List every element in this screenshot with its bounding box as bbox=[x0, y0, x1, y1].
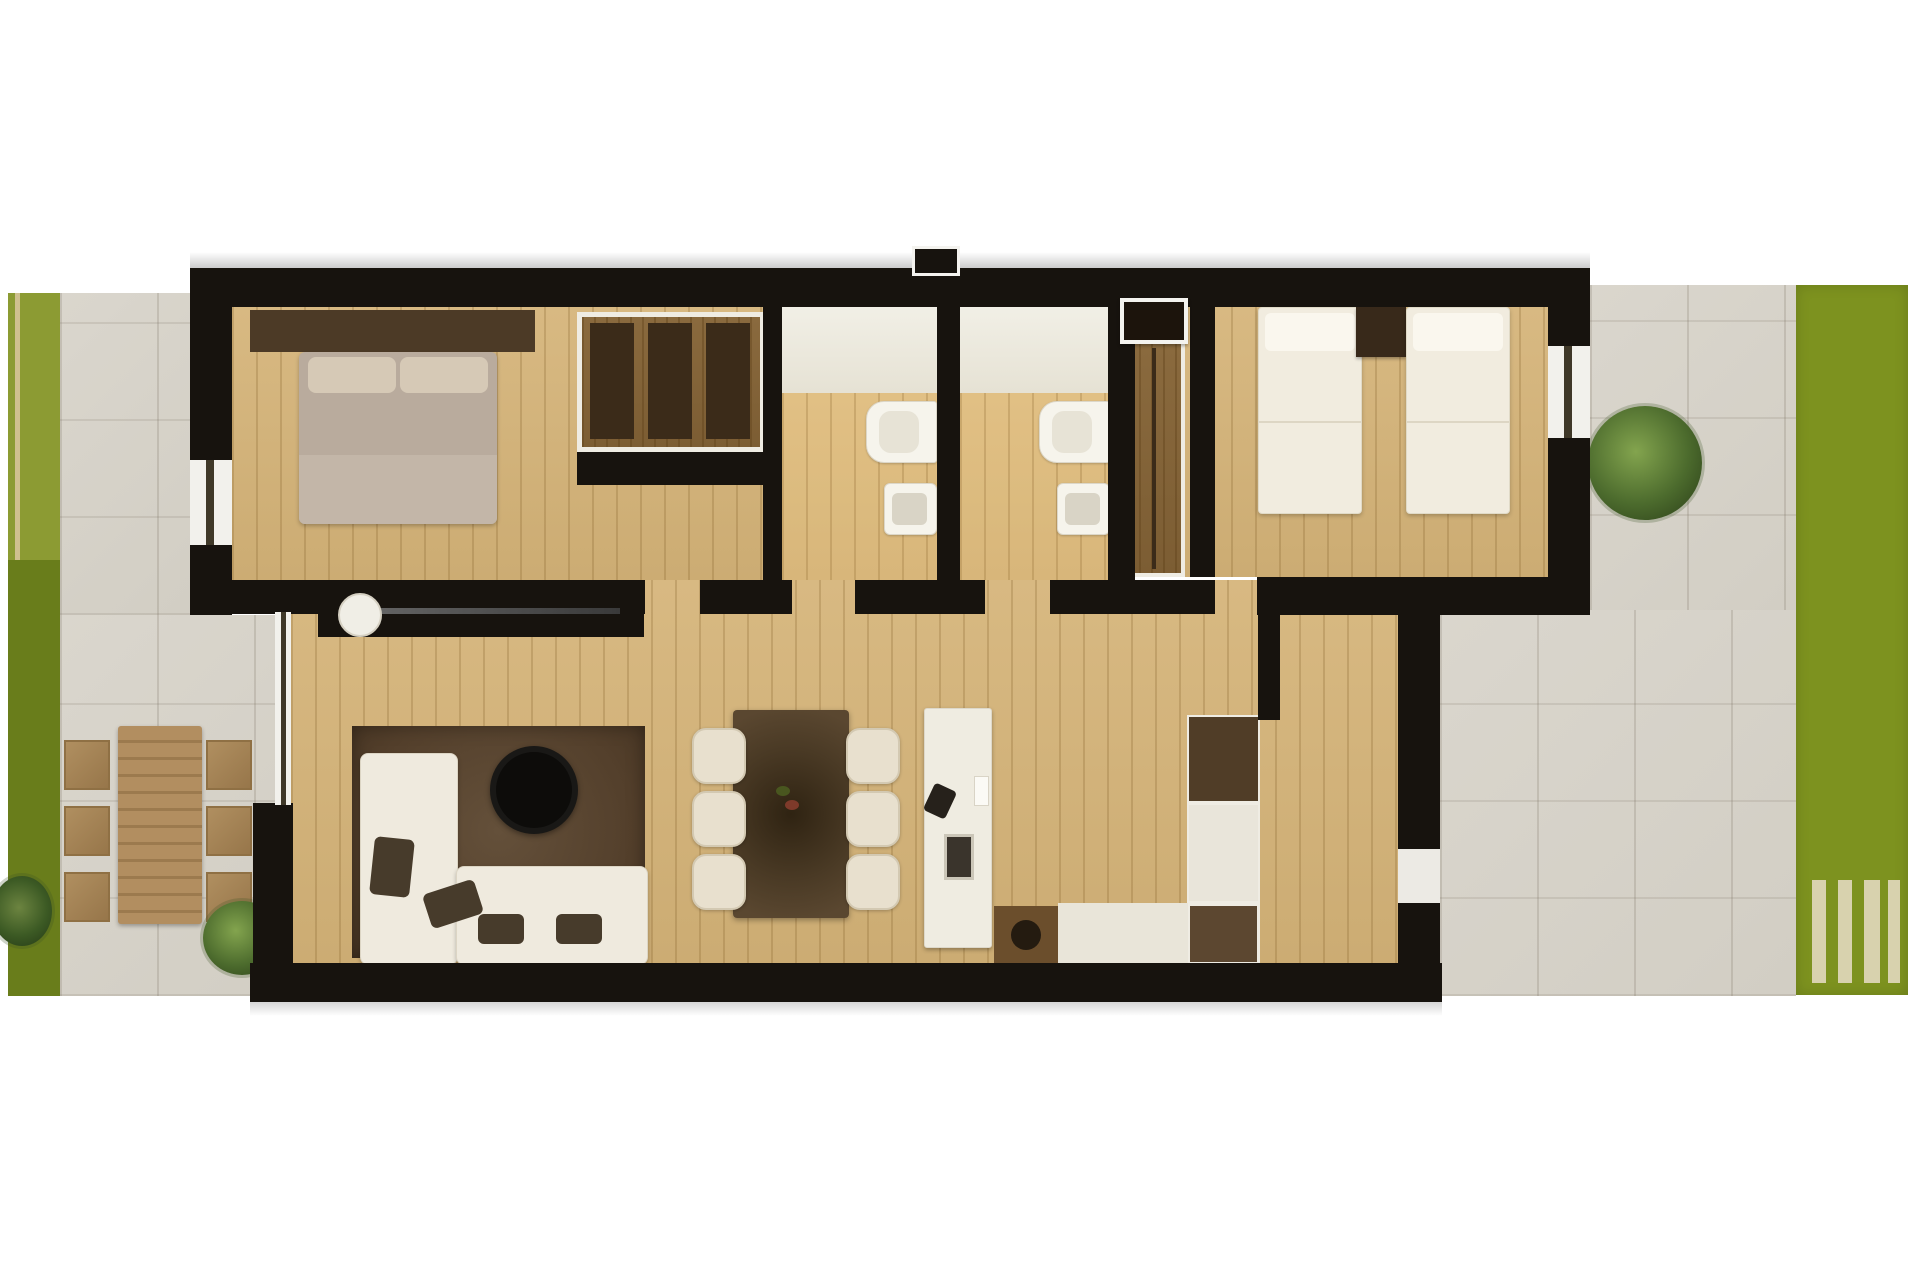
deck-slat bbox=[1864, 880, 1880, 983]
centerpiece bbox=[785, 800, 799, 810]
wall-left-upper bbox=[190, 268, 232, 460]
dining-table bbox=[733, 710, 849, 918]
bidet-basin bbox=[1065, 493, 1100, 525]
tall-fridge-unit-bottom bbox=[1187, 903, 1260, 965]
bedroom-2-window-glass bbox=[1564, 346, 1572, 438]
wall-mounted-tv bbox=[360, 608, 620, 614]
dining-chair bbox=[846, 728, 900, 784]
building-shadow-top bbox=[190, 252, 1590, 268]
bathroom-2-vanity bbox=[960, 307, 1108, 393]
wall-bath2-east bbox=[1108, 307, 1135, 614]
wall-bedroom2-east-upper bbox=[1548, 268, 1590, 346]
wall-bath1-south bbox=[855, 580, 985, 614]
wall-kitchen-hall bbox=[1258, 612, 1280, 720]
wall-living-west bbox=[253, 803, 293, 965]
tall-fridge-unit-mid bbox=[1187, 803, 1260, 903]
bidet-basin bbox=[892, 493, 927, 525]
outdoor-chair bbox=[64, 872, 110, 922]
bed-pillow bbox=[1413, 313, 1503, 351]
entrance-threshold bbox=[1398, 849, 1440, 903]
left-garden-grass-top bbox=[8, 293, 60, 560]
bathroom-2-bidet bbox=[1057, 483, 1110, 535]
counter-jar bbox=[974, 776, 989, 806]
bathroom-1-bidet bbox=[884, 483, 937, 535]
sofa-cushion bbox=[369, 836, 415, 898]
dining-chair bbox=[846, 854, 900, 910]
outdoor-chair bbox=[64, 740, 110, 790]
sofa-cushion bbox=[556, 914, 602, 944]
wardrobe-panel bbox=[590, 323, 634, 439]
wall-bottom bbox=[250, 963, 1442, 1002]
wall-wardrobe-base bbox=[577, 452, 782, 485]
outdoor-dining-table bbox=[118, 726, 202, 924]
bed-pillow bbox=[400, 357, 488, 393]
wall-closet-east bbox=[763, 305, 782, 614]
headboard-panel bbox=[250, 310, 535, 352]
bedroom-1-window-glass bbox=[206, 460, 214, 545]
building-shadow-bottom bbox=[250, 1002, 1442, 1016]
dining-chair bbox=[692, 791, 746, 847]
dining-chair bbox=[846, 791, 900, 847]
toilet-seat bbox=[879, 411, 919, 453]
bathroom-1-vanity bbox=[782, 307, 937, 393]
wardrobe-panel bbox=[648, 323, 692, 439]
outdoor-chair bbox=[206, 806, 252, 856]
bed-pillow bbox=[308, 357, 396, 393]
single-bed-left bbox=[1258, 307, 1362, 514]
bathroom-2-toilet bbox=[1039, 401, 1110, 463]
cooktop-ring bbox=[1011, 920, 1041, 950]
dining-chair bbox=[692, 728, 746, 784]
wardrobe-panel bbox=[706, 323, 750, 439]
wardrobe-door-line bbox=[1152, 348, 1156, 569]
tall-fridge-unit-top bbox=[1187, 715, 1260, 803]
wall-bath-divider bbox=[937, 307, 960, 614]
centerpiece bbox=[776, 786, 790, 796]
kitchen-island bbox=[924, 708, 992, 948]
cooktop-cabinet bbox=[994, 906, 1058, 963]
left-terrace-tile-upper bbox=[60, 293, 190, 615]
sofa-cushion bbox=[478, 914, 524, 944]
duvet-fold bbox=[299, 455, 497, 524]
built-in-wardrobe bbox=[577, 312, 765, 452]
kitchen-base-counter bbox=[1058, 903, 1188, 963]
high-window-box-small bbox=[912, 246, 960, 276]
duvet-fold bbox=[1259, 421, 1361, 423]
island-sink bbox=[944, 834, 974, 880]
bed-pillow bbox=[1265, 313, 1355, 351]
deck-slat bbox=[1838, 880, 1852, 983]
deck-slat bbox=[1812, 880, 1826, 983]
shrub-planter bbox=[1588, 406, 1702, 520]
bathroom-1-toilet bbox=[866, 401, 937, 463]
wall-top bbox=[190, 268, 1590, 307]
wall-closet2-east bbox=[1190, 307, 1215, 577]
outdoor-chair bbox=[206, 740, 252, 790]
deck-slat bbox=[1888, 880, 1900, 983]
round-coffee-table bbox=[490, 746, 578, 834]
right-terrace-tile-lower bbox=[1440, 610, 1796, 996]
single-bed-right bbox=[1406, 307, 1510, 514]
round-side-decor bbox=[338, 593, 382, 637]
double-bed bbox=[299, 352, 497, 524]
high-window-box bbox=[1120, 298, 1188, 344]
floor-plan-scene bbox=[0, 0, 1920, 1280]
toilet-seat bbox=[1052, 411, 1092, 453]
outdoor-chair bbox=[64, 806, 110, 856]
wall-bedroom2-east-lower bbox=[1548, 438, 1590, 615]
terrace-sliding-door-glass bbox=[281, 612, 286, 805]
garden-path-line bbox=[15, 293, 20, 560]
nightstand bbox=[1356, 307, 1406, 357]
dining-chair bbox=[692, 854, 746, 910]
wall-right-lower-upper bbox=[1398, 610, 1440, 849]
duvet-fold bbox=[1407, 421, 1509, 423]
